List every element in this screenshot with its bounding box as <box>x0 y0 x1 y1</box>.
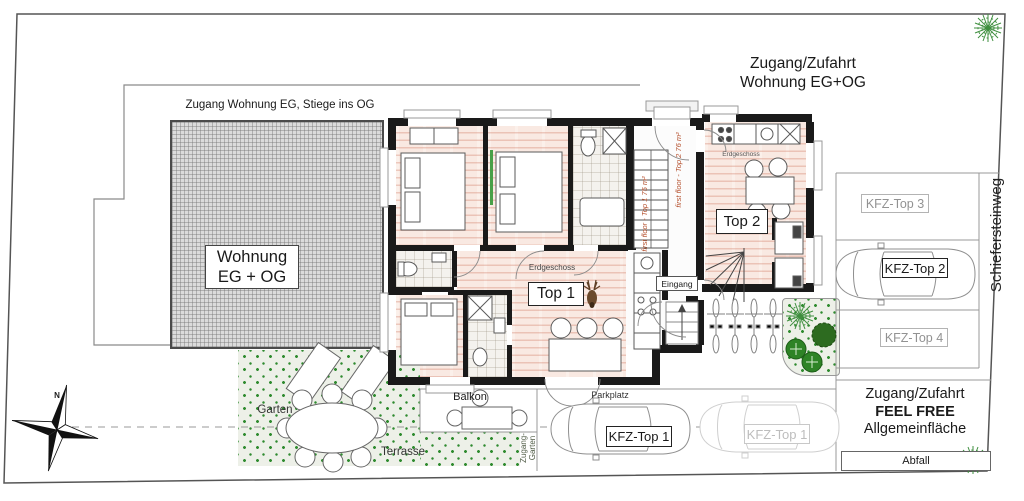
kfz-top4-label-box: KFZ-Top 4 <box>880 328 948 347</box>
abfall-label-box: Abfall <box>841 451 991 471</box>
allgemeinflaeche-label: Zugang/Zufahrt FEEL FREE Allgemeinfläche <box>845 386 985 439</box>
bicycle-icon <box>707 299 782 353</box>
zugang-garten-label: Zugang-Garten <box>519 415 539 481</box>
garten-label: Garten <box>240 404 310 416</box>
annotation-top1-area: first floor - Top 1 75 m² <box>640 159 654 269</box>
annotation-top2-area: first floor - Top 2 76 m² <box>674 115 688 225</box>
access-wohnung-label: Zugang/ZufahrtWohnung EG+OG <box>723 55 883 92</box>
erdgeschoss-top1-label: Erdgeschoss <box>512 263 592 272</box>
kfz-top1-label-box: KFZ-Top 1 <box>606 426 672 447</box>
winder-stairs-icon <box>706 248 744 302</box>
kfz-top1-ghost-label-box: KFZ-Top 1 <box>744 424 810 444</box>
access-eg-label: Zugang Wohnung EG, Stiege ins OG <box>155 99 405 111</box>
top1-label-box: Top 1 <box>528 282 584 306</box>
entrance-steps <box>666 302 698 344</box>
parkplatz-label: Parkplatz <box>570 390 650 400</box>
site-plan: Zugang/ZufahrtWohnung EG+OG Zugang Wohnu… <box>0 0 1024 501</box>
wohnung-eg-og-box: WohnungEG + OG <box>205 245 299 289</box>
deer-logo-icon <box>584 280 600 308</box>
kfz-top3-label-box: KFZ-Top 3 <box>861 194 929 213</box>
terrasse-label: Terrasse <box>368 446 438 458</box>
eingang-label-box: Eingang <box>656 276 698 291</box>
bush-icon <box>786 323 836 372</box>
compass-north-label: N <box>50 391 64 400</box>
top2-label-box: Top 2 <box>716 209 768 234</box>
balkon-label: Balkon <box>435 391 505 403</box>
street-label: Schiefersteinweg <box>988 150 1006 320</box>
kfz-top2-label-box: KFZ-Top 2 <box>882 258 948 278</box>
erdgeschoss-top2-label: Erdgeschoss <box>706 151 776 158</box>
